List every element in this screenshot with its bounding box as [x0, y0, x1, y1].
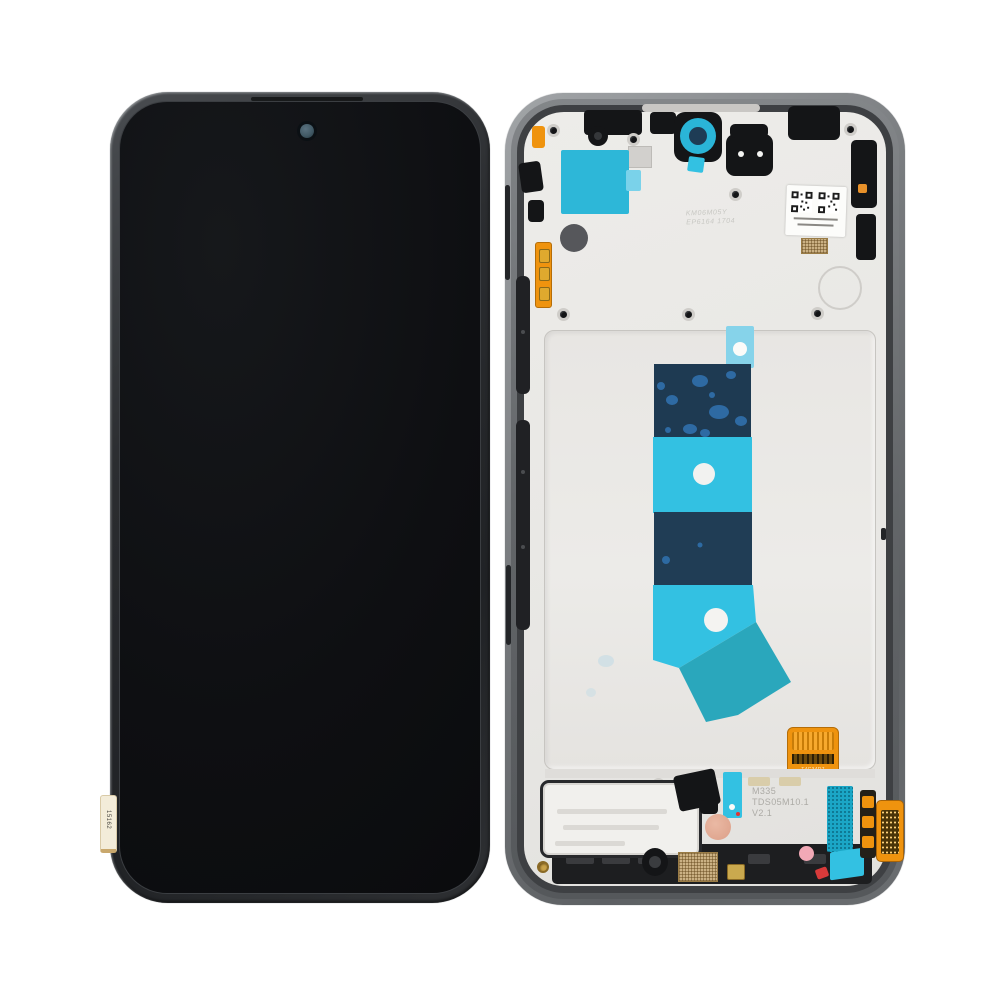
right-edge-bracket — [856, 214, 876, 260]
qr-label-text-line — [794, 217, 838, 221]
tape-tab-hole-icon — [733, 342, 747, 356]
screw — [814, 310, 821, 317]
qr-code-icon — [791, 191, 813, 213]
mold-ridge — [555, 841, 625, 846]
mold-ridge — [563, 825, 659, 830]
volume-button-flex — [535, 242, 552, 308]
bottom-tape-corner — [830, 848, 864, 881]
mold-ridge — [557, 809, 667, 814]
adhesive-sticker-cyan — [561, 150, 629, 214]
top-bracket-small — [650, 112, 676, 134]
camera-tape-tab — [687, 156, 705, 173]
emboss-marking-bottom: M335 TDS05M10.1 V2.1 — [752, 786, 832, 819]
mold-square — [628, 146, 652, 168]
screw — [550, 127, 557, 134]
screw — [560, 311, 567, 318]
bottom-tape-strip — [723, 772, 742, 818]
screw — [630, 136, 637, 143]
left-corner-bracket — [518, 161, 544, 194]
flex-contact-dot — [858, 184, 867, 193]
right-edge-bracket — [851, 140, 877, 208]
qr-code-icon — [818, 192, 840, 214]
side-button-rail — [516, 420, 530, 630]
bottom-flex-tail — [700, 800, 718, 814]
adhesive-sticker-tab — [626, 170, 641, 191]
rail-notch — [748, 854, 770, 864]
beige-slot — [779, 777, 801, 786]
product-photo: 15162 — [0, 0, 1000, 1000]
rail-hole-icon — [521, 545, 525, 549]
flash-module-top — [730, 124, 768, 138]
flex-pad — [862, 816, 874, 828]
recess-smudge — [586, 688, 596, 697]
qr-label — [785, 185, 847, 237]
microphone-contact — [727, 864, 745, 880]
rubber-cap — [560, 224, 588, 252]
tape-band-navy — [654, 512, 752, 585]
flash-led-icon — [757, 151, 763, 157]
screw — [732, 191, 739, 198]
gold-screw — [537, 861, 549, 873]
side-button-rail — [516, 276, 530, 394]
button-contact-pad — [539, 267, 550, 281]
top-left-flex — [532, 126, 545, 148]
earpiece-bracket — [788, 106, 840, 140]
tape-hole-icon — [693, 463, 715, 485]
qr-label-text-line — [797, 223, 833, 226]
sensor-hole-icon — [594, 132, 602, 140]
front-screen — [119, 101, 481, 894]
camera-opening-center — [689, 127, 707, 145]
flex-pad — [862, 836, 874, 848]
pink-marker-dot — [799, 846, 814, 861]
top-slot — [642, 104, 760, 112]
beige-slot — [748, 777, 770, 786]
mesh-grille-top — [801, 238, 828, 254]
button-contact-pad — [539, 287, 550, 301]
battery-adhesive-tape — [640, 318, 810, 728]
flash-led-icon — [738, 151, 744, 157]
contact-grille-bottom — [678, 852, 718, 882]
grommet-hole-icon — [649, 856, 661, 868]
rail-hole-icon — [521, 330, 525, 334]
antenna-line — [505, 185, 510, 280]
flash-module — [726, 134, 773, 176]
screw — [685, 311, 692, 318]
connector-pin-grid — [881, 810, 899, 854]
rail-hole-icon — [521, 470, 525, 474]
vibration-motor-seat — [818, 266, 862, 310]
qc-sticker-text: 15162 — [105, 810, 111, 829]
emboss-marking-center: KM06M05Y EP6164 1704 — [686, 207, 767, 228]
earpiece-slot — [251, 97, 363, 101]
front-camera-punch-hole-icon — [300, 124, 314, 138]
recess-smudge — [598, 655, 614, 667]
antenna-line — [881, 528, 886, 540]
adhesive-disc — [705, 814, 731, 840]
flex-pad — [862, 796, 874, 808]
connector-pins — [792, 754, 834, 764]
thermal-pad — [827, 786, 853, 852]
tape-hole-icon — [729, 804, 735, 810]
flex-connector: T4C34D7 — [787, 727, 839, 775]
antenna-line — [506, 565, 511, 645]
external-flex-connector — [876, 800, 904, 862]
left-corner-bracket — [528, 200, 544, 222]
screw — [847, 126, 854, 133]
button-contact-pad — [539, 249, 550, 263]
connector-comb — [792, 732, 834, 750]
red-marker-dot — [736, 812, 740, 816]
tape-hole-icon — [704, 608, 728, 632]
qc-sticker: 15162 — [100, 795, 117, 853]
